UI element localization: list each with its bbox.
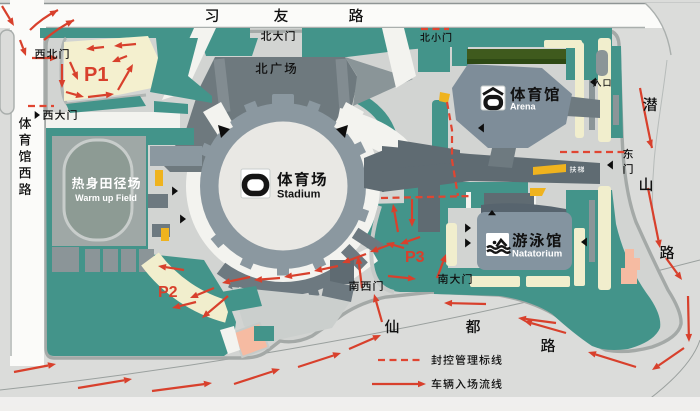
svg-text:Arena: Arena [510,102,537,112]
svg-text:P3: P3 [405,249,425,266]
svg-text:P2: P2 [158,284,178,301]
svg-text:P1: P1 [84,64,108,86]
svg-text:Natatorium: Natatorium [512,249,562,260]
svg-text:Stadium: Stadium [277,189,321,201]
svg-text:Warm up Field: Warm up Field [75,193,137,203]
